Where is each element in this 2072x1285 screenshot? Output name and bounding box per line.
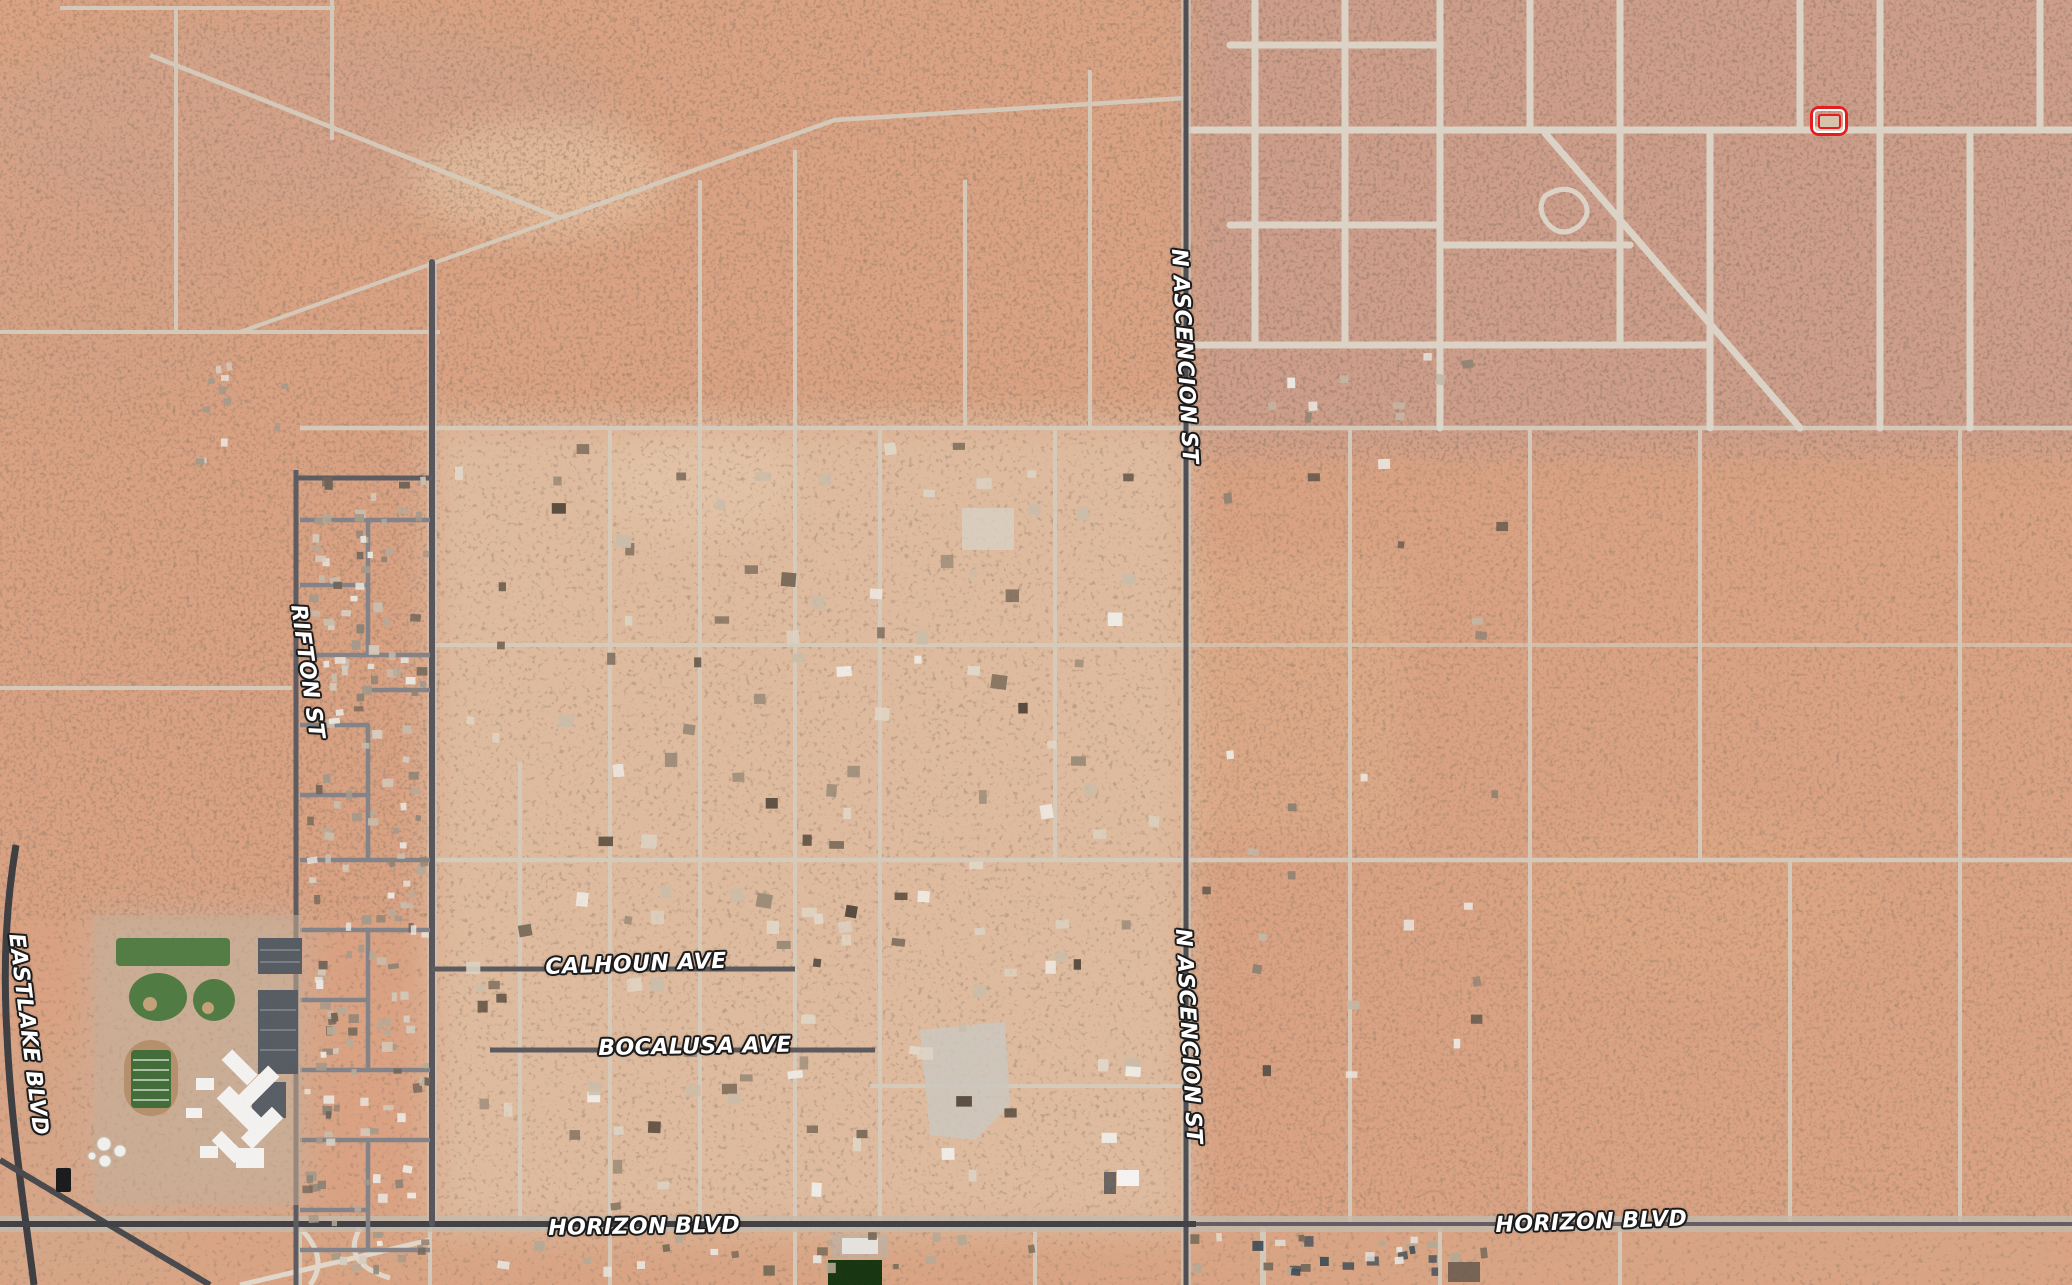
parcel-outline-marker-white-ring xyxy=(1813,109,1845,133)
parcel-outline-marker-inner-ring xyxy=(1818,114,1841,129)
parcel-outline-marker[interactable] xyxy=(1810,106,1848,136)
street-label-bocalusa-ave: BOCALUSA AVE xyxy=(598,1033,792,1061)
satellite-map-canvas[interactable]: EASTLAKE BLVD RIFTON ST N ASCENCION ST N… xyxy=(0,0,2072,1285)
street-label-horizon-blvd-west: HORIZON BLVD xyxy=(548,1213,740,1241)
